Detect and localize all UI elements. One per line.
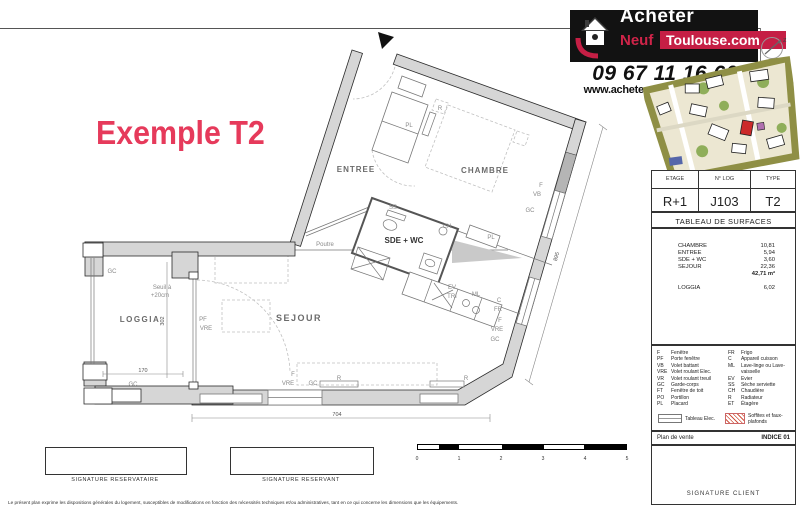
- tag-r-entree: R: [438, 106, 443, 112]
- tag-vre-loggia: VRE: [200, 326, 212, 332]
- radiators: [320, 381, 464, 387]
- scale-tick-2: 2: [500, 456, 503, 462]
- unit-info-table: ETAGE N° LOG TYPE R+1 J103 T2: [651, 170, 796, 212]
- tag-c: C: [497, 298, 502, 304]
- site-plan-map: [641, 56, 800, 184]
- legend-right-column: FRFrigo CAppareil cuisson MLLave-linge o…: [728, 350, 793, 408]
- scale-bar: 0 1 2 3 4 5: [417, 444, 627, 450]
- soffites-hatch-symbol: [725, 413, 745, 424]
- note-poutre: Poutre: [316, 242, 334, 248]
- note-seuil-2: +20cm: [151, 293, 169, 299]
- floor-plan-sheet: { "title": "Exemple T2", "header": { "lo…: [0, 0, 800, 529]
- surface-row: SEJOUR 22,36: [678, 264, 775, 271]
- room-label-entree: ENTREE: [337, 165, 375, 174]
- floor-plan-drawing: ENTREE CHAMBRE SEJOUR LOGGIA SDE + WC Po…: [0, 0, 660, 460]
- entry-arrow-icon: [378, 32, 394, 49]
- tag-tri: TRI: [447, 294, 457, 300]
- dim-895: 895: [553, 251, 561, 261]
- tag-ev: EV: [448, 285, 456, 291]
- legend-left-column: FFenêtre PFPorte fenêtre VBVolet battant…: [657, 350, 728, 408]
- tableau-elec-symbol: [658, 414, 682, 423]
- logo-text-acheter: Acheter: [620, 6, 694, 28]
- wall-entry-diagonal: [290, 50, 363, 246]
- signature-reservant-label: SIGNATURE RESERVANT: [230, 477, 372, 483]
- surface-row-loggia: LOGGIA 6,02: [678, 285, 775, 292]
- tag-pl-entree: PL: [405, 123, 413, 129]
- logo-text-toulouse: Toulouse.com: [666, 32, 760, 48]
- disclaimer-text: Le présent plan exprime les dispositions…: [8, 500, 458, 505]
- logo-text-neuf: Neuf: [620, 32, 653, 49]
- house-icon: [572, 12, 618, 60]
- dim-302: 302: [160, 316, 166, 325]
- plan-footer-box: Plan de vente INDICE 01: [651, 431, 796, 445]
- legend-box: FFenêtre PFPorte fenêtre VBVolet battant…: [651, 345, 796, 431]
- note-seuil-1: Seuil à: [153, 285, 172, 291]
- info-value-type: T2: [751, 189, 795, 213]
- info-header-type: TYPE: [751, 171, 795, 189]
- plan-de-vente-label: Plan de vente: [657, 435, 694, 441]
- signature-client-label: SIGNATURE CLIENT: [652, 491, 795, 497]
- entry-closet: [372, 76, 436, 163]
- scale-tick-0: 0: [416, 456, 419, 462]
- scale-tick-4: 4: [584, 456, 587, 462]
- scale-tick-5: 5: [626, 456, 629, 462]
- dim-170: 170: [138, 368, 147, 374]
- info-header-etage: ETAGE: [652, 171, 699, 189]
- tag-f-right-2: F: [498, 318, 502, 324]
- scale-tick-3: 3: [542, 456, 545, 462]
- tag-gc-right-1: GC: [526, 208, 536, 214]
- room-label-chambre: CHAMBRE: [461, 166, 509, 175]
- legend-symbols-row: Tableau Elec. Soffites et faux-plafonds: [658, 413, 793, 425]
- surface-row: ENTREE 5,94: [678, 250, 775, 257]
- surface-total: 42,71 m²: [752, 271, 775, 278]
- svg-text:z: z: [783, 37, 787, 44]
- tag-pf: PF: [199, 317, 207, 323]
- info-value-nlog: J103: [699, 189, 751, 213]
- surfaces-table: CHAMBRE 10,81 ENTREE 5,94 SDE + WC 3,60 …: [651, 228, 796, 345]
- soffites-label: Soffites et faux-plafonds: [748, 413, 788, 425]
- tag-vb: VB: [533, 192, 541, 198]
- tag-vre-right-2: VRE: [491, 327, 503, 333]
- tag-vre-bottom: VRE: [282, 381, 294, 387]
- walls: [84, 50, 586, 405]
- tag-f-right-1: F: [539, 183, 543, 189]
- surface-row: SDE + WC 3,60: [678, 257, 775, 264]
- info-value-etage: R+1: [652, 189, 699, 213]
- indice-label: INDICE 01: [761, 435, 790, 441]
- tag-f-bottom: F: [291, 372, 295, 378]
- tableau-elec-label: Tableau Elec.: [685, 416, 715, 422]
- tag-r-sejour-1: R: [337, 376, 342, 382]
- info-header-nlog: N° LOG: [699, 171, 751, 189]
- surfaces-title: TABLEAU DE SURFACES: [652, 213, 795, 226]
- tag-ch: CH: [443, 224, 452, 230]
- tag-ml: ML: [472, 292, 481, 298]
- signature-reservataire-box: [45, 447, 187, 475]
- tag-gc-loggia-top: GC: [108, 269, 118, 275]
- tag-ss: SS: [389, 205, 397, 211]
- tag-gc-loggia-bottom: GC: [129, 382, 139, 388]
- tag-pl-chambre: PL: [487, 235, 495, 241]
- tag-gc-right-2: GC: [491, 337, 501, 343]
- dim-704: 704: [332, 412, 341, 418]
- room-label-sejour: SEJOUR: [276, 313, 322, 323]
- room-label-sde-wc: SDE + WC: [385, 236, 424, 245]
- signature-client-box: SIGNATURE CLIENT: [651, 445, 796, 505]
- tag-r-sejour-2: R: [464, 376, 469, 382]
- room-label-loggia: LOGGIA: [120, 315, 161, 324]
- signature-reservataire-label: SIGNATURE RESERVATAIRE: [45, 477, 185, 483]
- signature-reservant-box: [230, 447, 374, 475]
- surface-total-row: 42,71 m²: [678, 271, 775, 278]
- surfaces-title-box: TABLEAU DE SURFACES: [651, 212, 796, 228]
- scale-tick-1: 1: [458, 456, 461, 462]
- tag-gc-bottom: GC: [309, 381, 319, 387]
- surface-row: CHAMBRE 10,81: [678, 243, 775, 250]
- tag-fr: FR: [494, 307, 503, 313]
